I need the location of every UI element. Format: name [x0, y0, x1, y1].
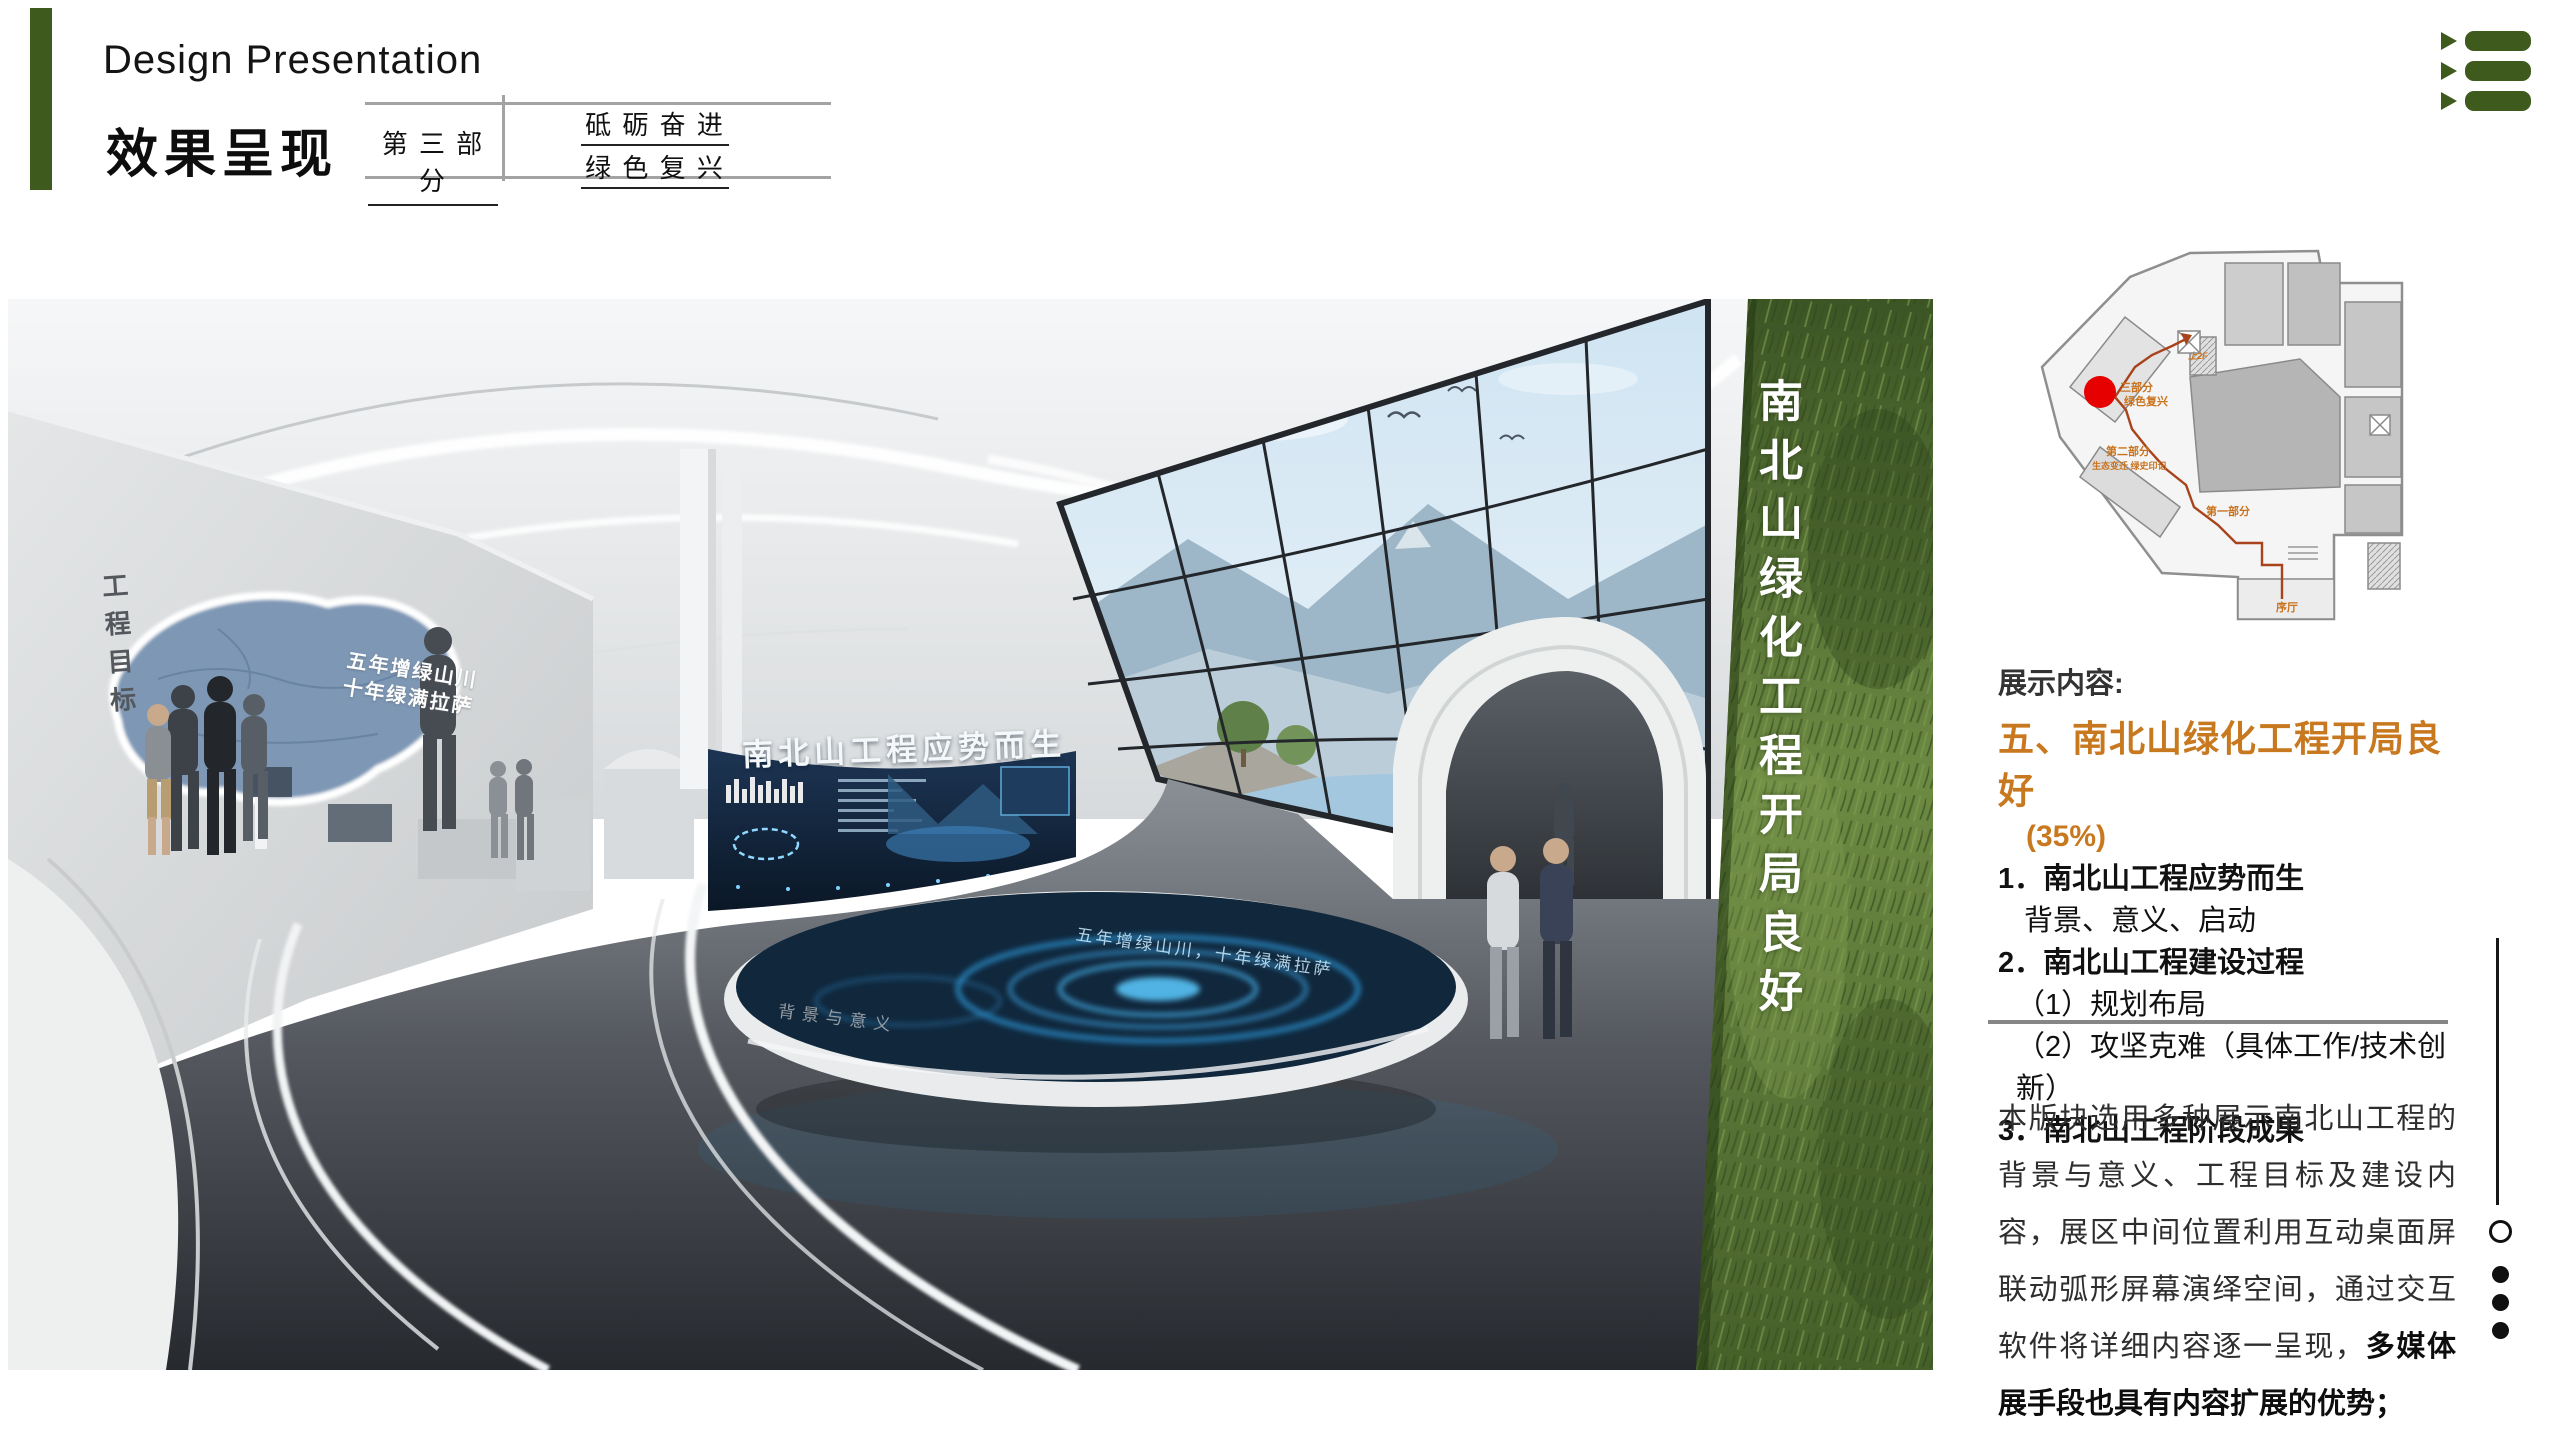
description-paragraph: 本版块选用多种展示南北山工程的背景与意义、工程目标及建设内容，展区中间位置利用互… — [1998, 1091, 2456, 1433]
part-label: 第 三 部 分 — [368, 124, 498, 206]
page-indicator-dot-1[interactable] — [2492, 1266, 2509, 1283]
slogan-block: 砥 砺 奋 进 绿 色 复 兴 — [540, 105, 770, 189]
content-panel: 展示内容: 五、南北山绿化工程开局良好 (35%) 1．南北山工程应势而生 背景… — [1998, 660, 2468, 1152]
vertical-rule — [2496, 938, 2499, 1205]
plan-label-part2-1: 第二部分 — [2106, 444, 2150, 458]
list-menu-icon[interactable] — [2441, 28, 2533, 112]
plan-label-part1: 第一部分 — [2206, 504, 2250, 518]
plan-label-up2f: 上2F — [2188, 351, 2208, 361]
location-marker — [2084, 376, 2116, 408]
plan-label-part3-1: 三部分 — [2120, 380, 2153, 394]
page-indicator-dot-2[interactable] — [2492, 1294, 2509, 1311]
page-indicator-dot-3[interactable] — [2492, 1322, 2509, 1339]
list-item-1-sub: 背景、意义、启动 — [2024, 900, 2468, 942]
list-item-1: 1．南北山工程应势而生 — [1998, 858, 2468, 900]
interactive-table[interactable] — [724, 891, 1468, 1153]
separator-line — [1988, 1020, 2448, 1024]
list-item-2: 2．南北山工程建设过程 — [1998, 942, 2468, 984]
paragraph-regular: 本版块选用多种展示南北山工程的背景与意义、工程目标及建设内容，展区中间位置利用互… — [1998, 1103, 2456, 1363]
page-indicator-current[interactable] — [2489, 1220, 2512, 1243]
plan-label-lobby: 序厅 — [2276, 600, 2298, 614]
accent-bar — [30, 8, 52, 190]
slogan-line-2: 绿 色 复 兴 — [581, 148, 729, 189]
stamp-box-divider — [502, 95, 505, 181]
percent-badge: (35%) — [2026, 820, 2468, 854]
slogan-line-1: 砥 砺 奋 进 — [581, 105, 729, 146]
page-title-cn: 效果呈现 — [106, 112, 338, 187]
exhibition-hall-render — [8, 299, 1933, 1370]
page-title-en: Design Presentation — [103, 38, 482, 83]
floor-plan-thumbnail[interactable]: 三部分 绿色复兴 第二部分 生态变迁 绿史印记 第一部分 序厅 上2F — [2040, 247, 2432, 645]
plan-label-part3-2: 绿色复兴 — [2124, 394, 2168, 408]
plan-label-part2-2: 生态变迁 绿史印记 — [2092, 460, 2167, 471]
section-heading: 五、南北山绿化工程开局良好 — [1998, 710, 2468, 814]
section-label: 展示内容: — [1998, 660, 2468, 702]
